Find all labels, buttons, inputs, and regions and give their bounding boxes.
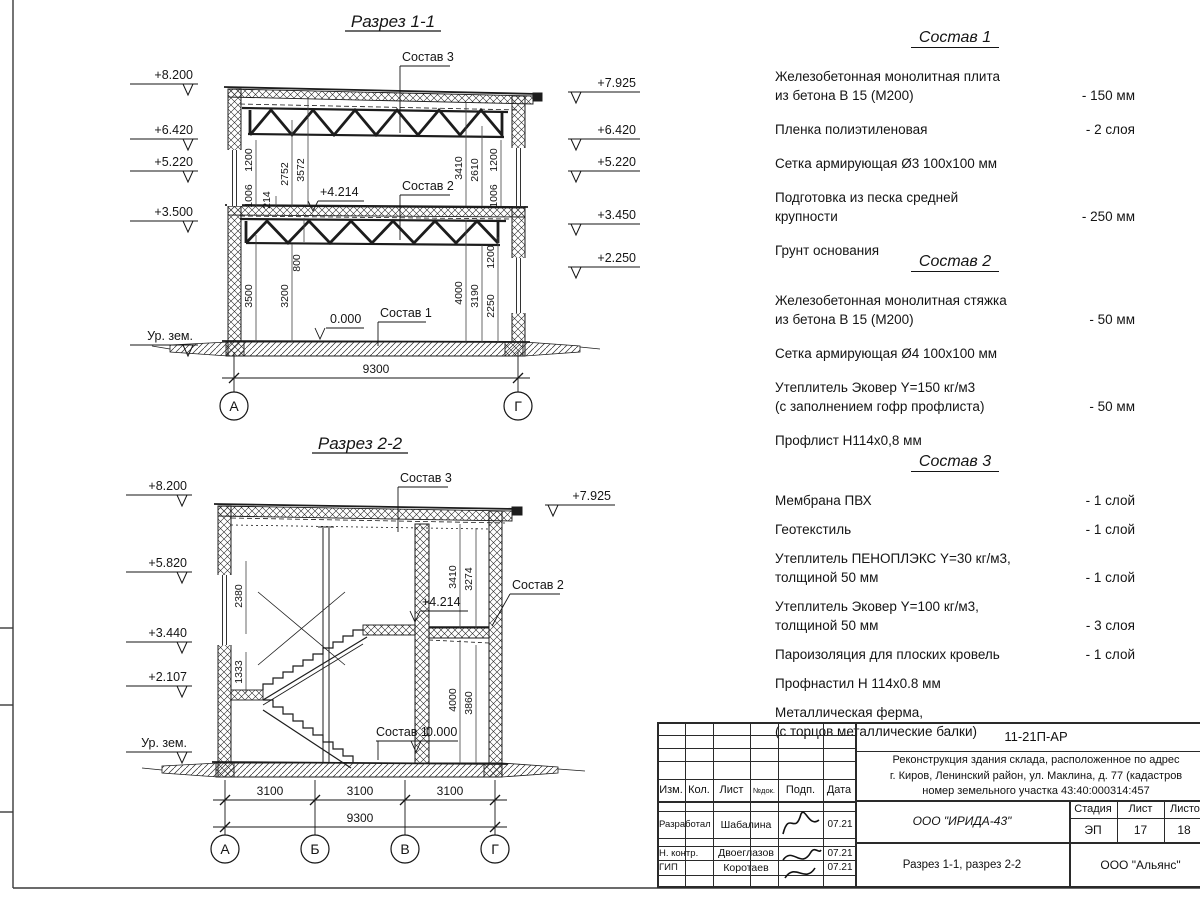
s1-dim-2250: 2250 (485, 294, 497, 318)
desc-line2: г. Киров, Ленинский район, ул. Маклина, … (855, 769, 1200, 785)
item-value: - 3 слоя (1086, 616, 1135, 635)
item-line1: Мембрана ПВХ (775, 491, 1043, 510)
item-value: - 1 слой (1086, 520, 1135, 539)
s1-elev-right-2: +5.220 (597, 155, 636, 169)
s1-dim-3500: 3500 (243, 284, 255, 308)
s2-elev-left-2: +3.440 (148, 626, 187, 640)
s1-callout-sostav2: Состав 2 (402, 179, 454, 193)
item-line2: из бетона В 15 (М200) (775, 86, 1043, 105)
section-2: Разрез 2-2 (126, 434, 615, 863)
s1-level-0000: 0.000 (330, 312, 361, 326)
list-item: Утеплитель Эковер Y=100 кг/м3,толщиной 5… (775, 597, 1135, 635)
item-line1: Подготовка из песка средней (775, 188, 1043, 207)
s1-callout-sostav1: Состав 1 (380, 306, 432, 320)
col-podp: Подп. (778, 779, 823, 801)
s1-dim-1200-b: 1200 (488, 148, 500, 172)
col-ndok: №док. (750, 779, 778, 801)
item-line1: Утеплитель Эковер Y=100 кг/м3, (775, 597, 1043, 616)
list-item: Железобетонная монолитная стяжкаиз бетон… (775, 291, 1135, 329)
signer-role: Разработал (659, 811, 713, 838)
signature-1 (779, 806, 823, 842)
s1-axis-a: А (229, 398, 239, 414)
item-line1: Железобетонная монолитная плита (775, 67, 1043, 86)
s2-axis-v: В (400, 841, 409, 857)
s1-dim-total: 9300 (363, 362, 390, 376)
list-item: Мембрана ПВХ - 1 слой (775, 491, 1135, 510)
item-line1: Железобетонная монолитная стяжка (775, 291, 1043, 310)
comp3-title: Состав 3 (775, 452, 1135, 471)
list-item: Сетка армирующая Ø4 100х100 мм (775, 344, 1135, 363)
s1-dim-3190: 3190 (469, 284, 481, 308)
s2-dim-1333: 1333 (233, 660, 245, 684)
item-value: - 50 мм (1089, 310, 1135, 329)
list-item: Подготовка из песка среднейкрупности - 2… (775, 188, 1135, 226)
s1-dim-2752: 2752 (279, 162, 291, 186)
s1-dim-3200: 3200 (279, 284, 291, 308)
s2-axis-a: А (220, 841, 230, 857)
s2-dim-3100-a: 3100 (257, 784, 284, 798)
item-value: - 1 слой (1086, 568, 1135, 587)
sheet-title: Разрез 1-1, разрез 2-2 (855, 842, 1069, 888)
s1-elev-left-4: Ур. зем. (147, 329, 193, 343)
s2-dim-4000: 4000 (447, 688, 459, 712)
item-line2: толщиной 50 мм (775, 568, 1043, 587)
s1-dim-4000: 4000 (453, 281, 465, 305)
s2-dim-3274: 3274 (463, 567, 475, 591)
s2-axis-g: Г (491, 841, 499, 857)
signer-name: Коротаев (715, 860, 777, 875)
s1-callout-sostav3: Состав 3 (402, 50, 454, 64)
s2-dim-3100-b: 3100 (347, 784, 374, 798)
s1-elev-right-3: +3.450 (597, 208, 636, 222)
sheets-total: 18 (1164, 818, 1200, 842)
title-block: Изм. Кол. Лист №док. Подп. Дата Разработ… (657, 722, 1200, 888)
list-item: Сетка армирующая Ø3 100х100 мм (775, 154, 1135, 173)
item-line2: (с заполнением гофр профлиста) (775, 397, 1043, 416)
comp2-title: Состав 2 (775, 252, 1135, 271)
s2-callout-lines (376, 487, 560, 760)
list-item: Пленка полиэтиленовая - 2 слоя (775, 120, 1135, 139)
s2-callout-sostav2: Состав 2 (512, 578, 564, 592)
section-1: Разрез 1-1 (130, 12, 640, 420)
s2-level-0000: 0.000 (426, 725, 457, 739)
sheet-label: Лист (1117, 800, 1164, 818)
s1-dim-1006-b: 1006 (488, 184, 500, 208)
s2-elev-left-1: +5.820 (148, 556, 187, 570)
s1-axis-g: Г (514, 398, 522, 414)
item-line2: толщиной 50 мм (775, 616, 1043, 635)
item-line1: Сетка армирующая Ø3 100х100 мм (775, 154, 1043, 173)
s1-elev-left-2: +5.220 (154, 155, 193, 169)
drawing-sheet: Разрез 1-1 (0, 0, 1200, 900)
signer-name: Шабалина (715, 811, 777, 838)
item-value: - 250 мм (1082, 207, 1135, 226)
list-item: Пароизоляция для плоских кровель - 1 сло… (775, 645, 1135, 664)
list-item: Профлист Н114х0,8 мм (775, 431, 1135, 450)
item-line1: Металлическая ферма, (775, 703, 1043, 722)
desc-line3: номер земельного участка 43:40:000314:45… (855, 784, 1200, 800)
item-line1: Утеплитель Эковер Y=150 кг/м3 (775, 378, 1043, 397)
sheets-label: Листов (1164, 800, 1200, 818)
s1-level-4214: +4.214 (320, 185, 359, 199)
project-description: Реконструкция здания склада, расположенн… (855, 753, 1200, 800)
s1-elev-right-4: +2.250 (597, 251, 636, 265)
s2-dim-total: 9300 (347, 811, 374, 825)
s2-dim-3860: 3860 (463, 691, 475, 715)
s1-dim-214: 214 (261, 191, 273, 209)
col-data: Дата (823, 779, 855, 801)
item-line2: из бетона В 15 (М200) (775, 310, 1043, 329)
s1-elev-left-1: +6.420 (154, 123, 193, 137)
list-item: Утеплитель ПЕНОПЛЭКС Y=30 кг/м3,толщиной… (775, 549, 1135, 587)
signature-2 (779, 844, 823, 886)
list-item: Железобетонная монолитная плитаиз бетона… (775, 67, 1135, 105)
list-item: Профнастил Н 114х0.8 мм (775, 674, 1135, 693)
list-item: Утеплитель Эковер Y=150 кг/м3(с заполнен… (775, 378, 1135, 416)
signer-date: 07.21 (825, 860, 855, 875)
item-value: - 50 мм (1089, 397, 1135, 416)
s1-dim-2610: 2610 (469, 158, 481, 182)
doc-code: 11-21П-АР (855, 722, 1200, 751)
signer-name: Двоеглазов (715, 846, 777, 860)
s1-building (152, 87, 600, 356)
section2-title: Разрез 2-2 (318, 434, 403, 453)
item-value: - 1 слой (1086, 645, 1135, 664)
signer-role: Н. контр. (659, 846, 713, 860)
s1-elev-left-0: +8.200 (154, 68, 193, 82)
item-value: - 1 слой (1086, 491, 1135, 510)
s2-callout-sostav1: Состав 1 (376, 725, 428, 739)
stage-value: ЭП (1069, 818, 1117, 842)
s2-elev-left-3: +2.107 (148, 670, 187, 684)
sheet-number: 17 (1117, 818, 1164, 842)
stage-label: Стадия (1069, 800, 1117, 818)
s2-elevation-marks-right (545, 505, 615, 516)
section1-title: Разрез 1-1 (351, 12, 435, 31)
s1-dim-1200-a: 1200 (243, 148, 255, 172)
item-line1: Сетка армирующая Ø4 100х100 мм (775, 344, 1043, 363)
s2-level-4214: +4.214 (422, 595, 461, 609)
s2-dim-3100-c: 3100 (437, 784, 464, 798)
s1-dim-800: 800 (291, 254, 303, 272)
desc-line1: Реконструкция здания склада, расположенн… (855, 753, 1200, 769)
signer-date: 07.21 (825, 811, 855, 838)
s2-dim-2380: 2380 (233, 584, 245, 608)
signer-date: 07.21 (825, 846, 855, 860)
item-line1: Профлист Н114х0,8 мм (775, 431, 1043, 450)
col-izm: Изм. (657, 779, 685, 801)
s1-elev-left-3: +3.500 (154, 205, 193, 219)
contractor: ООО "Альянс" (1069, 842, 1200, 888)
item-line1: Профнастил Н 114х0.8 мм (775, 674, 1043, 693)
comp1-title: Состав 1 (775, 28, 1135, 47)
s2-elev-left-4: Ур. зем. (141, 736, 187, 750)
s1-dim-3572: 3572 (295, 158, 307, 182)
signer-role: ГИП (659, 860, 713, 875)
s2-elev-right-0: +7.925 (572, 489, 611, 503)
item-value: - 150 мм (1082, 86, 1135, 105)
s1-dim-1200-c: 1200 (485, 245, 497, 269)
design-org: ООО "ИРИДА-43" (855, 800, 1069, 842)
item-line1: Пленка полиэтиленовая (775, 120, 1043, 139)
item-line1: Геотекстиль (775, 520, 1043, 539)
s1-elev-right-0: +7.925 (597, 76, 636, 90)
s2-dim-3410: 3410 (447, 565, 459, 589)
s1-elev-right-1: +6.420 (597, 123, 636, 137)
s2-elev-left-0: +8.200 (148, 479, 187, 493)
col-list: Лист (713, 779, 750, 801)
list-item: Геотекстиль - 1 слой (775, 520, 1135, 539)
item-line1: Пароизоляция для плоских кровель (775, 645, 1043, 664)
s2-callout-sostav3: Состав 3 (400, 471, 452, 485)
col-kol: Кол. (685, 779, 713, 801)
item-line1: Утеплитель ПЕНОПЛЭКС Y=30 кг/м3, (775, 549, 1043, 568)
s1-dim-3410: 3410 (453, 156, 465, 180)
item-line2: крупности (775, 207, 1043, 226)
s2-building (142, 504, 585, 777)
composition-list-1: Состав 1 Железобетонная монолитная плита… (775, 28, 1135, 275)
item-value: - 2 слоя (1086, 120, 1135, 139)
s1-dim-1006-a: 1006 (243, 184, 255, 208)
composition-list-3: Состав 3 Мембрана ПВХ - 1 слой Геотексти… (775, 452, 1135, 751)
s2-axis-b: Б (310, 841, 319, 857)
composition-list-2: Состав 2 Железобетонная монолитная стяжк… (775, 252, 1135, 465)
